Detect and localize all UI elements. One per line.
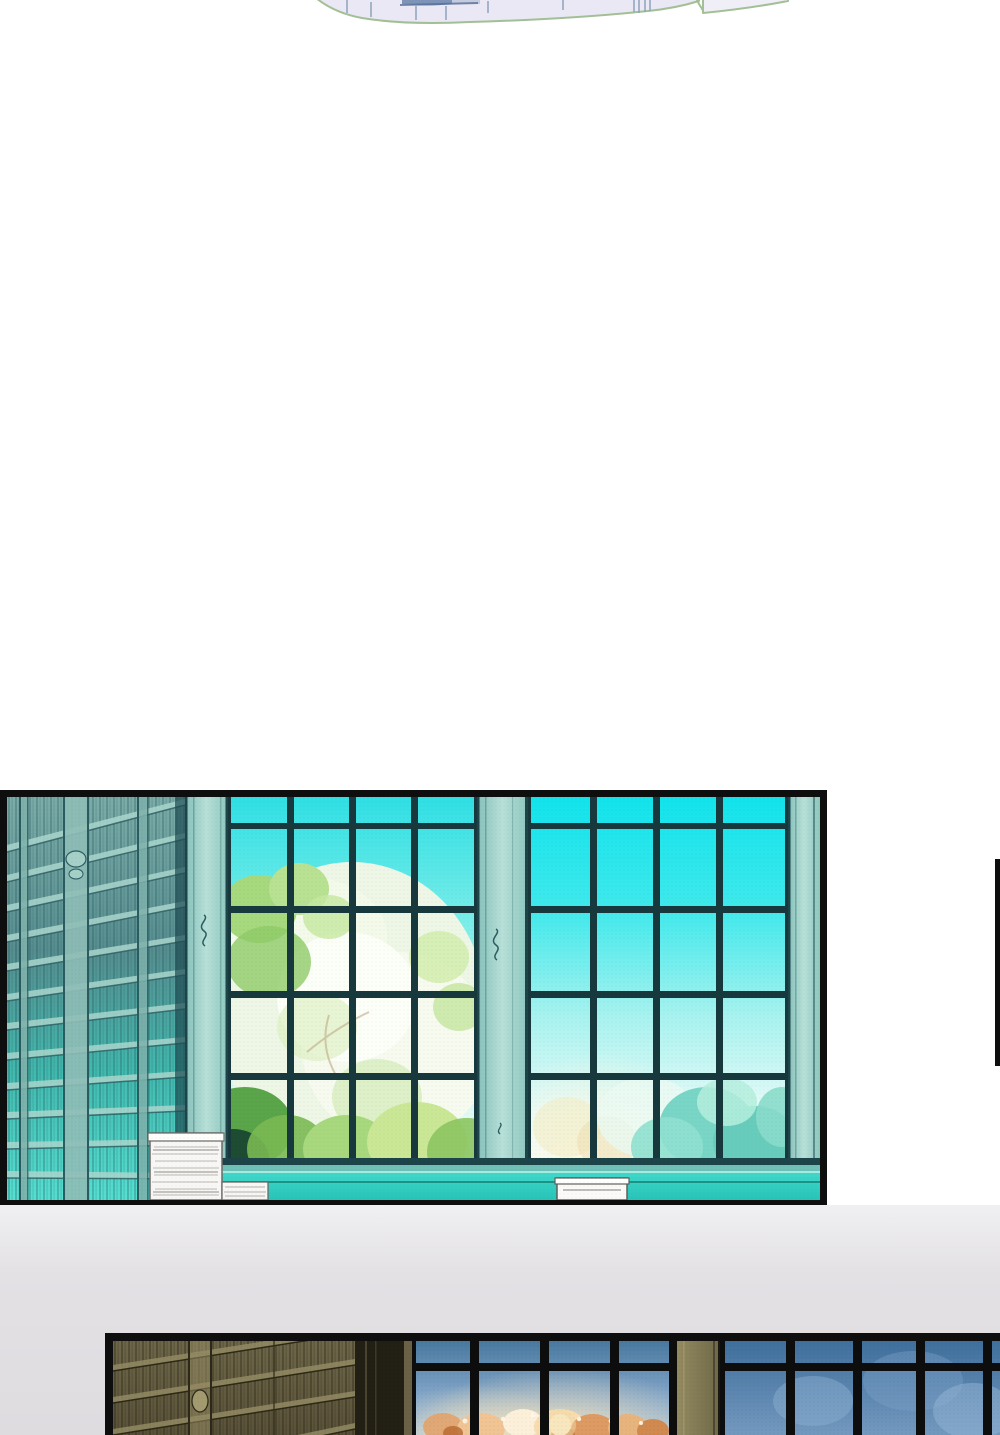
halftone-texture [113,1341,1000,1435]
panel-top-fragment [300,0,795,30]
halftone-texture [7,797,820,1200]
panel-edge-sliver [995,859,1000,1066]
comic-page [0,0,1000,1435]
panel-library-day [0,790,827,1207]
panel-library-dusk [105,1333,1000,1435]
fabric-edge [316,0,788,23]
